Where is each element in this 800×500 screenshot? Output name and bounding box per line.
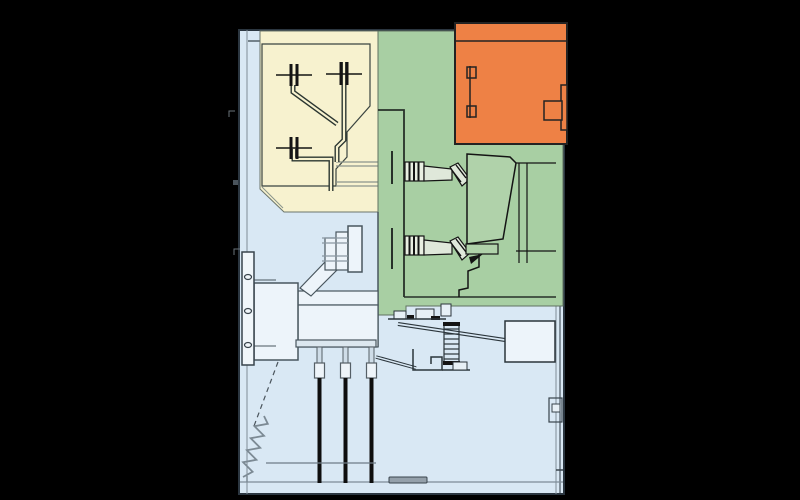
duct-box <box>254 283 298 360</box>
door-handle-knob <box>544 101 562 120</box>
tick-2 <box>233 180 238 185</box>
low-voltage-compartment <box>455 23 567 144</box>
mechanism-bracket <box>441 304 451 316</box>
cable-3 <box>370 378 374 483</box>
cable-terminations <box>315 363 377 378</box>
mounting-rail <box>242 252 254 365</box>
wall-bushing-plate <box>348 226 362 272</box>
switchgear-diagram <box>0 0 800 500</box>
floor-sill <box>389 477 427 483</box>
bushing-tube <box>424 240 452 255</box>
bracket-latch <box>552 404 560 412</box>
termination-plate <box>296 340 376 347</box>
pole-foot <box>466 244 498 254</box>
cable-1 <box>318 378 322 483</box>
stack-cap-top <box>443 322 460 326</box>
current-transformer-box <box>505 321 555 362</box>
cable-2 <box>344 378 348 483</box>
busbar-compartment-region <box>260 31 378 212</box>
screenshot-canvas <box>0 0 800 500</box>
mechanism-block <box>394 311 406 319</box>
busbar-compartment <box>260 31 378 212</box>
mechanism-foot <box>453 362 467 370</box>
bushing-tube <box>424 166 452 181</box>
